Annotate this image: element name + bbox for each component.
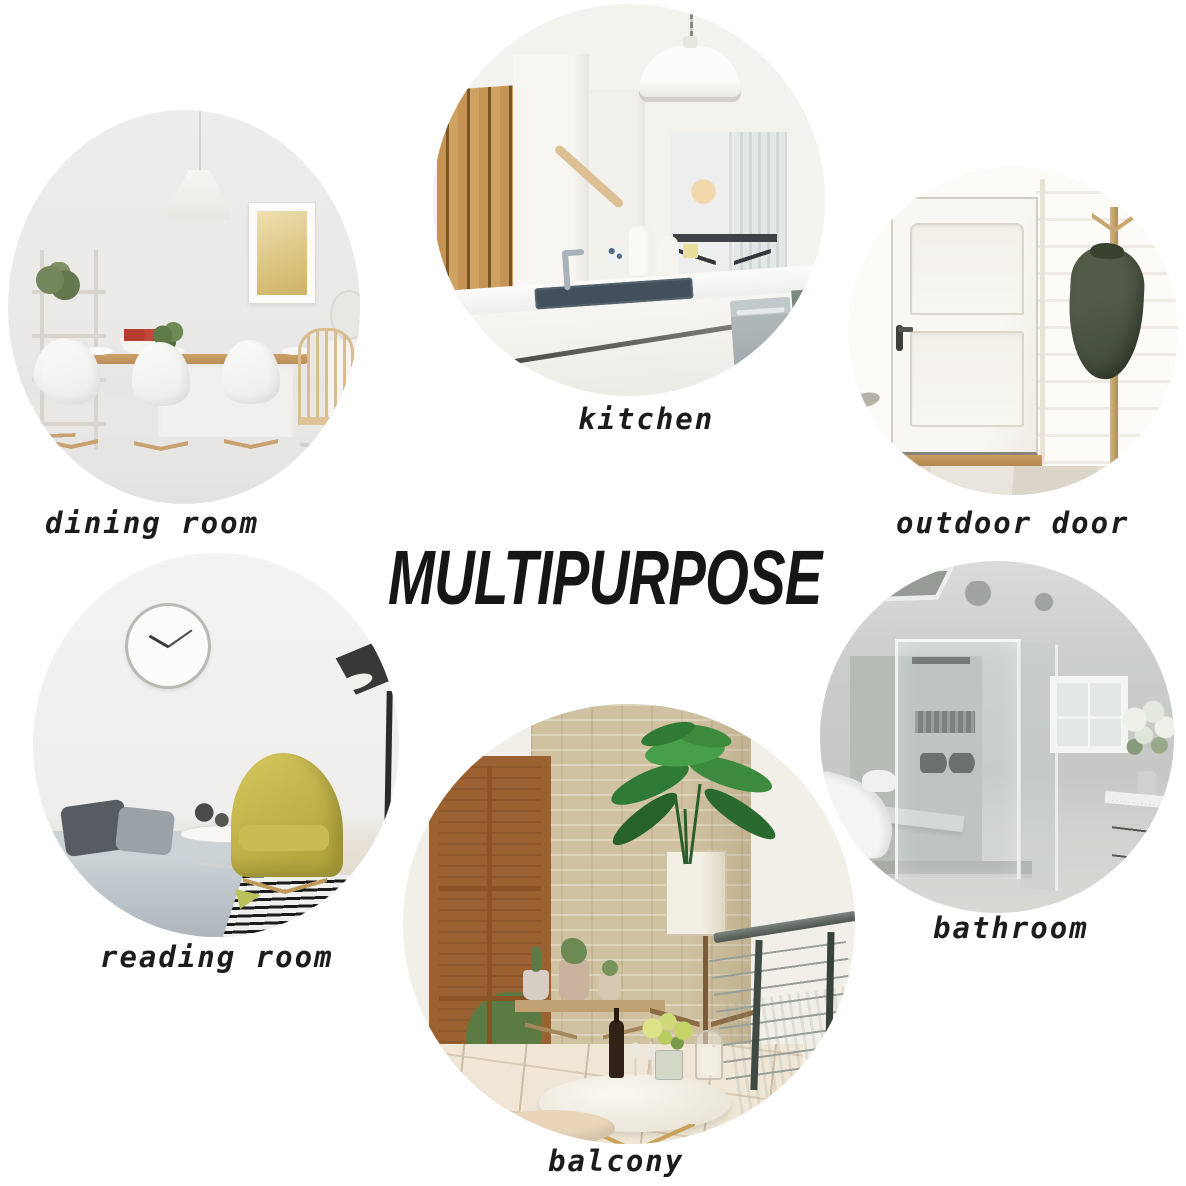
potted-plant bbox=[599, 974, 621, 1000]
wine-bottle bbox=[609, 1020, 624, 1078]
door-panel bbox=[910, 331, 1024, 427]
stool bbox=[487, 1110, 615, 1144]
counter-cup bbox=[607, 246, 626, 263]
counter-cup bbox=[683, 244, 698, 258]
flower-vase bbox=[655, 1050, 683, 1080]
toilet bbox=[862, 770, 896, 792]
table-decor bbox=[191, 799, 235, 829]
floor-lamp-pole bbox=[383, 691, 392, 889]
houseplant bbox=[34, 262, 84, 302]
white-door bbox=[891, 197, 1038, 455]
large-potted-plant bbox=[590, 714, 790, 874]
page-title: MULTIPURPOSE bbox=[388, 540, 822, 617]
potted-succulent bbox=[559, 960, 589, 1000]
multipurpose-collage: MULTIPURPOSE kitchen dining room outdoor… bbox=[0, 0, 1186, 1186]
shower-glass-panel bbox=[895, 639, 1021, 879]
coat-stand-hooks bbox=[1092, 209, 1136, 237]
vanity-flowers bbox=[1116, 700, 1174, 778]
counter-bottle bbox=[659, 236, 678, 276]
door-panel bbox=[910, 223, 1024, 315]
ceiling-lights bbox=[960, 581, 1080, 611]
pendant-lamp bbox=[168, 170, 230, 220]
windsor-chair bbox=[294, 328, 354, 460]
room-label-kitchen: kitchen bbox=[578, 404, 714, 436]
bathroom-photo bbox=[820, 561, 1174, 913]
room-label-dining-room: dining room bbox=[45, 508, 259, 540]
dining-room-photo bbox=[8, 110, 360, 504]
wall-clock bbox=[125, 603, 211, 689]
plant-leaves-icon bbox=[590, 714, 790, 874]
balcony-photo bbox=[403, 704, 855, 1144]
floor-lamp-shade bbox=[329, 640, 398, 698]
yellow-armchair bbox=[231, 753, 343, 877]
counter-bottle bbox=[629, 226, 653, 276]
shoes bbox=[849, 389, 882, 410]
pendant-lamp-cord bbox=[199, 110, 201, 172]
sofa-pillow bbox=[115, 806, 175, 856]
room-label-reading-room: reading room bbox=[100, 942, 334, 974]
kitchen-photo bbox=[433, 4, 825, 396]
cabinet bbox=[791, 288, 825, 389]
dining-chair bbox=[126, 342, 196, 492]
pendant-lamp bbox=[639, 46, 741, 102]
ceiling-vent bbox=[863, 566, 955, 603]
dishwasher bbox=[730, 297, 796, 391]
entry-floor bbox=[848, 466, 1178, 495]
room-label-outdoor-door: outdoor door bbox=[896, 508, 1130, 540]
dining-chair bbox=[36, 340, 106, 490]
candle-jar bbox=[695, 1030, 723, 1080]
vanity-cabinet bbox=[1112, 800, 1174, 896]
room-label-bathroom: bathroom bbox=[933, 913, 1089, 945]
room-label-balcony: balcony bbox=[548, 1146, 684, 1178]
outdoor-door-photo bbox=[848, 167, 1178, 495]
door-handle bbox=[896, 325, 903, 351]
dining-chair bbox=[216, 340, 286, 490]
reading-room-photo bbox=[33, 553, 399, 937]
potted-cactus bbox=[523, 970, 549, 1000]
wall-art-frame bbox=[248, 202, 316, 304]
door-frame bbox=[1040, 179, 1045, 463]
